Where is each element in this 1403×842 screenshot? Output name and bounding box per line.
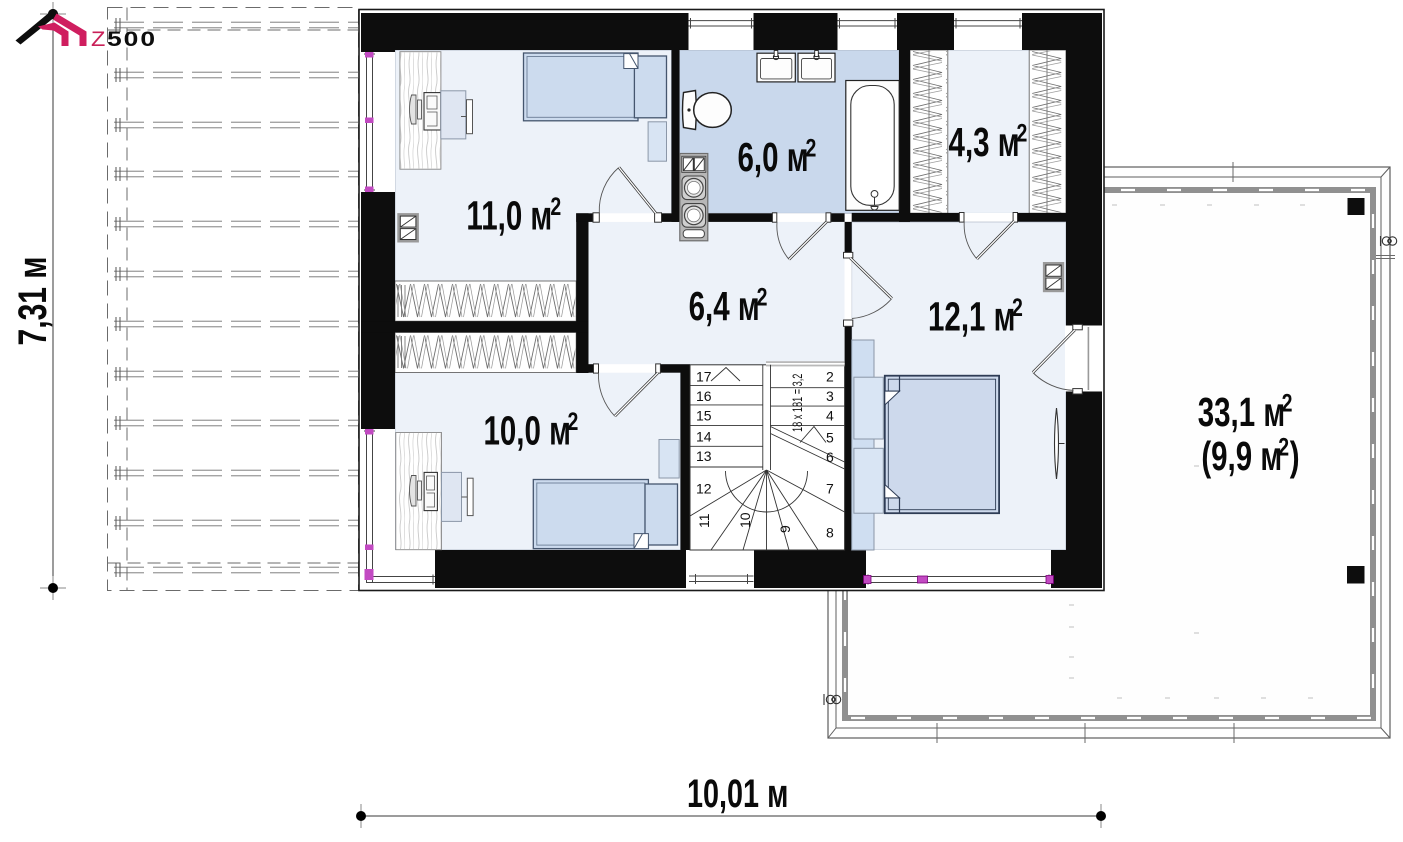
svg-text:4: 4 xyxy=(826,408,834,424)
svg-text:2: 2 xyxy=(1278,433,1289,461)
svg-text:8: 8 xyxy=(826,525,834,541)
svg-text:33,1 м: 33,1 м xyxy=(1198,389,1285,435)
svg-text:): ) xyxy=(1290,433,1300,479)
svg-text:7,31 м: 7,31 м xyxy=(11,257,55,346)
svg-text:13: 13 xyxy=(696,448,712,464)
svg-text:10,01 м: 10,01 м xyxy=(687,771,788,816)
svg-text:2: 2 xyxy=(568,408,579,436)
svg-text:2: 2 xyxy=(757,283,768,311)
svg-text:2: 2 xyxy=(1282,389,1293,417)
svg-text:2: 2 xyxy=(550,193,561,221)
svg-text:500: 500 xyxy=(107,27,157,51)
svg-text:2: 2 xyxy=(806,134,817,162)
svg-text:3: 3 xyxy=(826,388,834,404)
svg-text:2: 2 xyxy=(1012,294,1023,322)
svg-text:6,4 м: 6,4 м xyxy=(689,283,760,329)
svg-text:6,0 м: 6,0 м xyxy=(737,134,808,180)
svg-text:2: 2 xyxy=(826,369,834,385)
svg-text:10: 10 xyxy=(737,512,753,528)
svg-text:4,3 м: 4,3 м xyxy=(949,119,1020,165)
svg-text:16: 16 xyxy=(696,388,712,404)
svg-text:10,0 м: 10,0 м xyxy=(483,408,570,454)
svg-text:17: 17 xyxy=(696,369,712,385)
svg-text:12: 12 xyxy=(696,481,712,497)
svg-text:18 x 181 = 3,2: 18 x 181 = 3,2 xyxy=(791,374,805,432)
svg-text:Z: Z xyxy=(91,27,105,51)
svg-text:9: 9 xyxy=(777,525,793,533)
svg-text:15: 15 xyxy=(696,408,712,424)
svg-text:(9,9 м: (9,9 м xyxy=(1201,433,1282,479)
svg-text:14: 14 xyxy=(696,429,712,445)
svg-text:5: 5 xyxy=(826,430,834,446)
svg-text:12,1 м: 12,1 м xyxy=(928,294,1015,340)
svg-text:2: 2 xyxy=(1016,119,1027,147)
svg-text:7: 7 xyxy=(826,481,834,497)
svg-text:11: 11 xyxy=(696,513,712,528)
svg-text:11,0 м: 11,0 м xyxy=(466,193,552,239)
svg-text:6: 6 xyxy=(826,449,834,465)
